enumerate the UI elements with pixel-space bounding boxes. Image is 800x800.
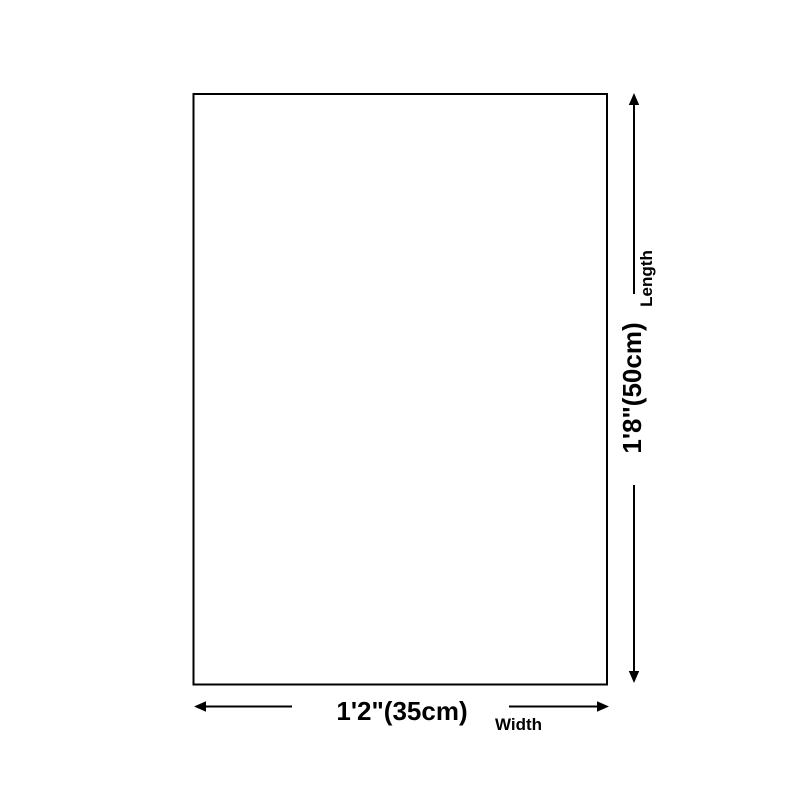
svg-text:1'2"(35cm): 1'2"(35cm) — [336, 696, 467, 726]
svg-text:1'8"(50cm): 1'8"(50cm) — [617, 322, 647, 453]
svg-text:Length: Length — [637, 250, 656, 307]
svg-text:Width: Width — [495, 715, 542, 734]
